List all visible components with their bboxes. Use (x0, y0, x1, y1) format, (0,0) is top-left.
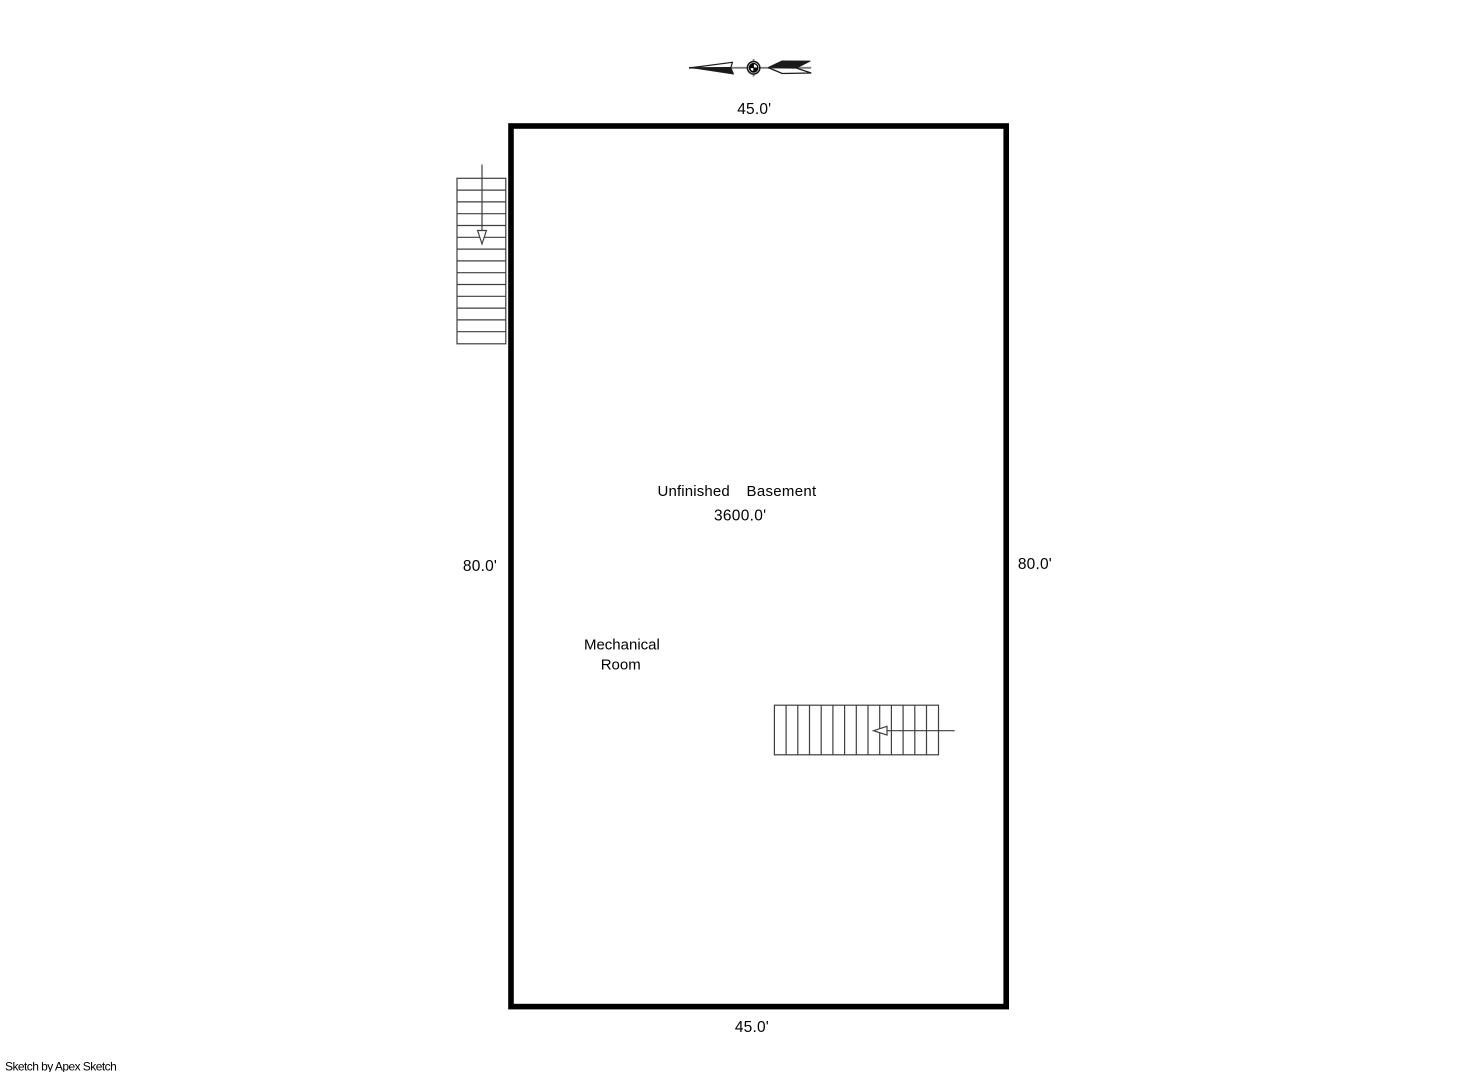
svg-text:Room: Room (601, 656, 641, 673)
svg-text:Basement: Basement (747, 483, 817, 500)
svg-text:Unfinished: Unfinished (658, 483, 730, 500)
svg-text:80.0': 80.0' (1018, 556, 1052, 573)
svg-text:45.0': 45.0' (735, 1019, 769, 1036)
svg-text:3600.0': 3600.0' (714, 508, 766, 525)
svg-text:Sketch by Apex Sketch: Sketch by Apex Sketch (5, 1059, 116, 1072)
svg-text:80.0': 80.0' (463, 558, 497, 575)
svg-text:Mechanical: Mechanical (584, 637, 660, 654)
svg-text:45.0': 45.0' (737, 101, 771, 118)
